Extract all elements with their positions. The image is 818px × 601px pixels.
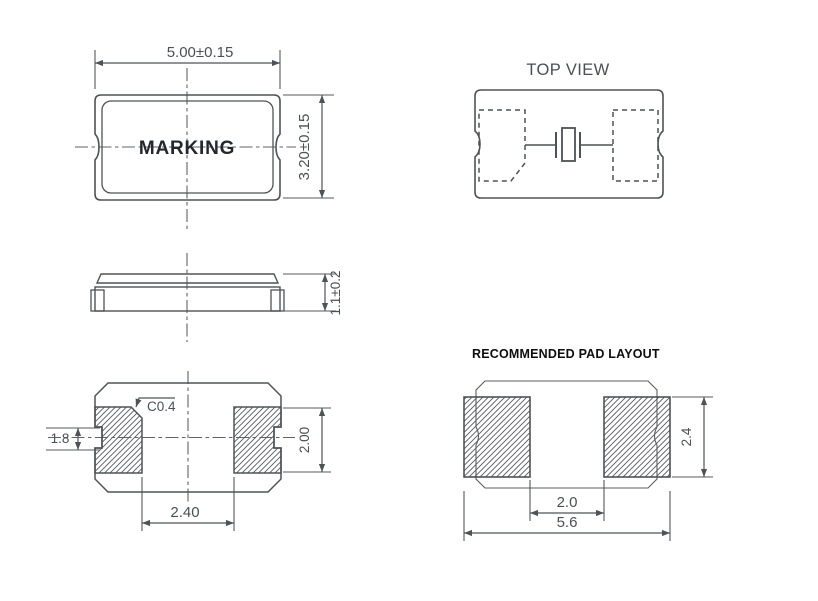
chamfer-callout: C0.4 bbox=[136, 398, 176, 414]
technical-drawing: MARKING 5.00±0.15 3.20±0.15 TOP VIEW bbox=[0, 0, 818, 601]
pad-layout-view: RECOMMENDED PAD LAYOUT 2.4 2.0 5.6 bbox=[464, 347, 713, 541]
front-width-dimension: 5.00±0.15 bbox=[95, 44, 280, 89]
layout-total-width-dimension-label: 5.6 bbox=[557, 514, 578, 531]
top-right-pad-hidden-outline bbox=[613, 110, 658, 181]
front-width-dimension-label: 5.00±0.15 bbox=[167, 44, 234, 61]
bottom-pad-height-dimension: 2.00 bbox=[283, 408, 331, 472]
side-view: 1.1±0.2 bbox=[91, 253, 343, 342]
front-height-dimension-label: 3.20±0.15 bbox=[296, 114, 313, 181]
drawing-canvas: MARKING 5.00±0.15 3.20±0.15 TOP VIEW bbox=[0, 0, 818, 601]
layout-pad-gap-dimension-label: 2.0 bbox=[557, 494, 578, 511]
bottom-right-pad bbox=[234, 407, 281, 473]
marking-label: MARKING bbox=[139, 138, 235, 159]
bottom-view: C0.4 1.8 2.00 2.40 bbox=[46, 371, 331, 531]
crystal-symbol bbox=[525, 128, 613, 161]
bottom-pad-gap-dimension-label: 2.40 bbox=[170, 504, 199, 521]
pad-layout-title: RECOMMENDED PAD LAYOUT bbox=[472, 347, 660, 361]
top-left-pad-hidden-outline bbox=[479, 110, 525, 181]
side-thickness-dimension-label: 1.1±0.2 bbox=[328, 271, 343, 316]
layout-left-pad bbox=[464, 397, 530, 477]
chamfer-callout-label: C0.4 bbox=[147, 399, 176, 414]
layout-pad-height-dimension: 2.4 bbox=[672, 397, 713, 477]
bottom-left-pad bbox=[95, 407, 142, 473]
side-left-terminal bbox=[91, 290, 104, 311]
bottom-pad-height-dimension-label: 2.00 bbox=[297, 427, 312, 453]
bottom-notch-dimension: 1.8 bbox=[46, 428, 100, 450]
front-view: MARKING 5.00±0.15 3.20±0.15 bbox=[75, 44, 334, 231]
top-view-title: TOP VIEW bbox=[526, 61, 609, 79]
bottom-pad-gap-dimension: 2.40 bbox=[142, 477, 234, 531]
side-right-terminal bbox=[271, 290, 284, 311]
layout-right-pad bbox=[604, 397, 670, 477]
side-thickness-dimension: 1.1±0.2 bbox=[283, 271, 343, 316]
bottom-notch-dimension-label: 1.8 bbox=[51, 431, 70, 446]
layout-pad-height-dimension-label: 2.4 bbox=[679, 427, 694, 446]
top-view: TOP VIEW bbox=[475, 61, 663, 198]
